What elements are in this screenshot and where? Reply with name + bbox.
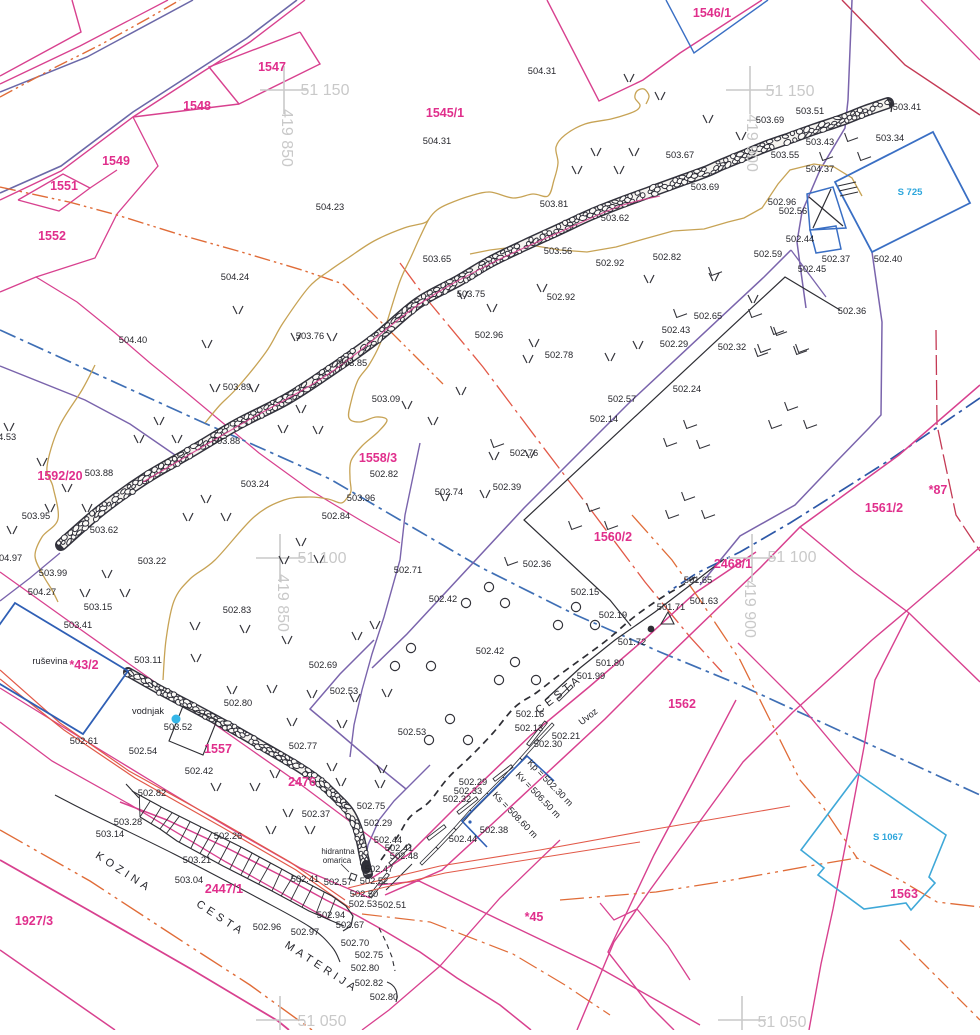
svg-text:504.97: 504.97 xyxy=(0,553,22,563)
svg-text:1927/3: 1927/3 xyxy=(15,914,53,928)
svg-text:503.15: 503.15 xyxy=(84,602,112,612)
svg-text:503.75: 503.75 xyxy=(457,289,485,299)
svg-text:502.82: 502.82 xyxy=(370,469,398,479)
svg-text:503.67: 503.67 xyxy=(666,150,694,160)
svg-text:503.04: 503.04 xyxy=(175,875,203,885)
svg-text:1549: 1549 xyxy=(102,154,130,168)
svg-text:502.57: 502.57 xyxy=(608,394,636,404)
svg-text:501.72: 501.72 xyxy=(618,637,646,647)
svg-text:502.56: 502.56 xyxy=(779,206,807,216)
svg-text:1592/20: 1592/20 xyxy=(37,469,82,483)
svg-text:502.26: 502.26 xyxy=(214,831,242,841)
svg-text:503.85: 503.85 xyxy=(339,358,367,368)
svg-text:502.92: 502.92 xyxy=(547,292,575,302)
svg-text:502.69: 502.69 xyxy=(309,660,337,670)
svg-text:S 725: S 725 xyxy=(898,187,924,198)
svg-text:419 900: 419 900 xyxy=(741,580,758,638)
svg-text:503.81: 503.81 xyxy=(540,199,568,209)
svg-text:502.44: 502.44 xyxy=(449,834,477,844)
svg-text:502.59: 502.59 xyxy=(754,249,782,259)
svg-text:1561/2: 1561/2 xyxy=(865,501,903,515)
svg-text:S 1067: S 1067 xyxy=(873,832,903,843)
svg-text:503.21: 503.21 xyxy=(183,855,211,865)
svg-text:*43/2: *43/2 xyxy=(69,658,98,672)
svg-text:1548: 1548 xyxy=(183,99,211,113)
svg-text:502.97: 502.97 xyxy=(291,927,319,937)
svg-text:1546/1: 1546/1 xyxy=(693,6,731,20)
svg-text:1563: 1563 xyxy=(890,887,918,901)
svg-text:51 100: 51 100 xyxy=(298,550,347,567)
svg-text:503.95: 503.95 xyxy=(22,511,50,521)
svg-text:502.94: 502.94 xyxy=(317,910,345,920)
svg-text:vodnjak: vodnjak xyxy=(132,706,164,716)
svg-text:504.31: 504.31 xyxy=(423,136,451,146)
svg-text:502.53: 502.53 xyxy=(349,899,377,909)
svg-text:1558/3: 1558/3 xyxy=(359,451,397,465)
svg-text:502.80: 502.80 xyxy=(351,963,379,973)
svg-text:502.78: 502.78 xyxy=(545,350,573,360)
svg-text:502.75: 502.75 xyxy=(357,801,385,811)
svg-text:502.36: 502.36 xyxy=(838,306,866,316)
svg-text:419 850: 419 850 xyxy=(274,574,291,632)
svg-text:502.80: 502.80 xyxy=(224,698,252,708)
svg-text:502.41: 502.41 xyxy=(291,874,319,884)
svg-text:502.39: 502.39 xyxy=(493,482,521,492)
svg-text:501.63: 501.63 xyxy=(690,596,718,606)
svg-text:503.34: 503.34 xyxy=(876,133,904,143)
svg-text:502.71: 502.71 xyxy=(394,565,422,575)
svg-text:504.31: 504.31 xyxy=(528,66,556,76)
svg-text:502.74: 502.74 xyxy=(435,487,463,497)
svg-text:503.88: 503.88 xyxy=(212,436,240,446)
svg-text:503.65: 503.65 xyxy=(423,254,451,264)
svg-text:502.32: 502.32 xyxy=(718,342,746,352)
svg-text:2476: 2476 xyxy=(288,775,316,789)
svg-text:502.84: 502.84 xyxy=(322,511,350,521)
svg-text:504.24: 504.24 xyxy=(221,272,249,282)
svg-text:502.19: 502.19 xyxy=(599,610,627,620)
svg-text:502.92: 502.92 xyxy=(596,258,624,268)
svg-text:504.37: 504.37 xyxy=(806,164,834,174)
svg-text:502.82: 502.82 xyxy=(355,978,383,988)
svg-text:503.62: 503.62 xyxy=(90,525,118,535)
svg-text:503.43: 503.43 xyxy=(806,137,834,147)
svg-text:51 150: 51 150 xyxy=(301,82,350,99)
svg-text:503.56: 503.56 xyxy=(544,246,572,256)
svg-text:502.76: 502.76 xyxy=(510,448,538,458)
svg-text:502.42: 502.42 xyxy=(476,646,504,656)
svg-text:502.83: 502.83 xyxy=(223,605,251,615)
svg-text:503.55: 503.55 xyxy=(771,150,799,160)
svg-text:502.29: 502.29 xyxy=(660,339,688,349)
svg-text:502.96: 502.96 xyxy=(475,330,503,340)
svg-text:502.32: 502.32 xyxy=(443,794,471,804)
svg-text:504.23: 504.23 xyxy=(316,202,344,212)
svg-text:502.57: 502.57 xyxy=(324,877,352,887)
svg-text:503.09: 503.09 xyxy=(372,394,400,404)
svg-text:503.89: 503.89 xyxy=(223,382,251,392)
svg-text:502.42: 502.42 xyxy=(185,766,213,776)
svg-text:503.52: 503.52 xyxy=(164,722,192,732)
svg-text:503.96: 503.96 xyxy=(347,493,375,503)
svg-text:1551: 1551 xyxy=(50,179,78,193)
svg-text:502.15: 502.15 xyxy=(571,587,599,597)
svg-text:51 150: 51 150 xyxy=(766,83,815,100)
svg-text:ruševina: ruševina xyxy=(32,656,68,666)
svg-text:502.51: 502.51 xyxy=(378,900,406,910)
svg-text:503.14: 503.14 xyxy=(96,829,124,839)
svg-text:503.62: 503.62 xyxy=(601,213,629,223)
svg-text:2447/1: 2447/1 xyxy=(205,882,243,896)
svg-text:1562: 1562 xyxy=(668,697,696,711)
svg-text:503.24: 503.24 xyxy=(241,479,269,489)
svg-text:502.13: 502.13 xyxy=(515,723,543,733)
svg-text:51 100: 51 100 xyxy=(768,549,817,566)
svg-text:omarica: omarica xyxy=(323,856,352,865)
svg-text:502.24: 502.24 xyxy=(673,384,701,394)
svg-text:502.29: 502.29 xyxy=(364,818,392,828)
svg-text:419 850: 419 850 xyxy=(278,109,295,167)
svg-text:1547: 1547 xyxy=(258,60,286,74)
svg-text:502.53: 502.53 xyxy=(330,686,358,696)
svg-text:502.52: 502.52 xyxy=(360,876,388,886)
svg-text:501.80: 501.80 xyxy=(596,658,624,668)
svg-text:503.76: 503.76 xyxy=(296,331,324,341)
svg-text:503.69: 503.69 xyxy=(691,182,719,192)
svg-text:504.27: 504.27 xyxy=(28,587,56,597)
svg-text:503.69: 503.69 xyxy=(756,115,784,125)
svg-text:503.99: 503.99 xyxy=(39,568,67,578)
svg-text:51 050: 51 050 xyxy=(298,1013,347,1030)
svg-text:*87: *87 xyxy=(929,483,948,497)
svg-text:1560/2: 1560/2 xyxy=(594,530,632,544)
svg-text:hidrantna: hidrantna xyxy=(321,847,355,856)
svg-text:504.40: 504.40 xyxy=(119,335,147,345)
svg-text:502.47: 502.47 xyxy=(365,864,393,874)
svg-text:501.65: 501.65 xyxy=(684,575,712,585)
svg-text:1545/1: 1545/1 xyxy=(426,106,464,120)
svg-text:502.67: 502.67 xyxy=(336,920,364,930)
svg-text:502.16: 502.16 xyxy=(516,709,544,719)
svg-text:502.70: 502.70 xyxy=(341,938,369,948)
svg-text:504.53: 504.53 xyxy=(0,432,16,442)
svg-text:502.14: 502.14 xyxy=(590,414,618,424)
svg-text:1557: 1557 xyxy=(204,742,232,756)
svg-text:502.54: 502.54 xyxy=(129,746,157,756)
svg-text:1552: 1552 xyxy=(38,229,66,243)
svg-text:502.42: 502.42 xyxy=(429,594,457,604)
svg-text:503.51: 503.51 xyxy=(796,106,824,116)
svg-text:*45: *45 xyxy=(525,910,544,924)
svg-text:502.44: 502.44 xyxy=(786,234,814,244)
svg-text:503.11: 503.11 xyxy=(134,655,162,665)
svg-text:502.77: 502.77 xyxy=(289,741,317,751)
svg-text:502.37: 502.37 xyxy=(302,809,330,819)
svg-text:502.50: 502.50 xyxy=(350,889,378,899)
svg-text:502.61: 502.61 xyxy=(70,736,98,746)
svg-text:503.22: 503.22 xyxy=(138,556,166,566)
svg-text:502.43: 502.43 xyxy=(662,325,690,335)
svg-text:502.45: 502.45 xyxy=(798,264,826,274)
svg-text:2468/1: 2468/1 xyxy=(714,557,752,571)
svg-text:502.75: 502.75 xyxy=(355,950,383,960)
svg-text:502.48: 502.48 xyxy=(390,851,418,861)
svg-text:501.99: 501.99 xyxy=(577,671,605,681)
svg-text:502.40: 502.40 xyxy=(874,254,902,264)
svg-text:502.30: 502.30 xyxy=(534,739,562,749)
svg-text:502.65: 502.65 xyxy=(694,311,722,321)
svg-text:503.28: 503.28 xyxy=(114,817,142,827)
svg-text:502.38: 502.38 xyxy=(480,825,508,835)
svg-text:501.71: 501.71 xyxy=(657,602,685,612)
svg-text:502.80: 502.80 xyxy=(370,992,398,1002)
svg-text:51 050: 51 050 xyxy=(758,1014,807,1030)
svg-text:503.41: 503.41 xyxy=(64,620,92,630)
svg-text:502.36: 502.36 xyxy=(523,559,551,569)
svg-text:502.37: 502.37 xyxy=(822,254,850,264)
svg-text:503.88: 503.88 xyxy=(85,468,113,478)
svg-text:502.96: 502.96 xyxy=(253,922,281,932)
svg-text:502.82: 502.82 xyxy=(138,788,166,798)
svg-text:502.82: 502.82 xyxy=(653,252,681,262)
svg-text:502.53: 502.53 xyxy=(398,727,426,737)
svg-text:503.41: 503.41 xyxy=(893,102,921,112)
